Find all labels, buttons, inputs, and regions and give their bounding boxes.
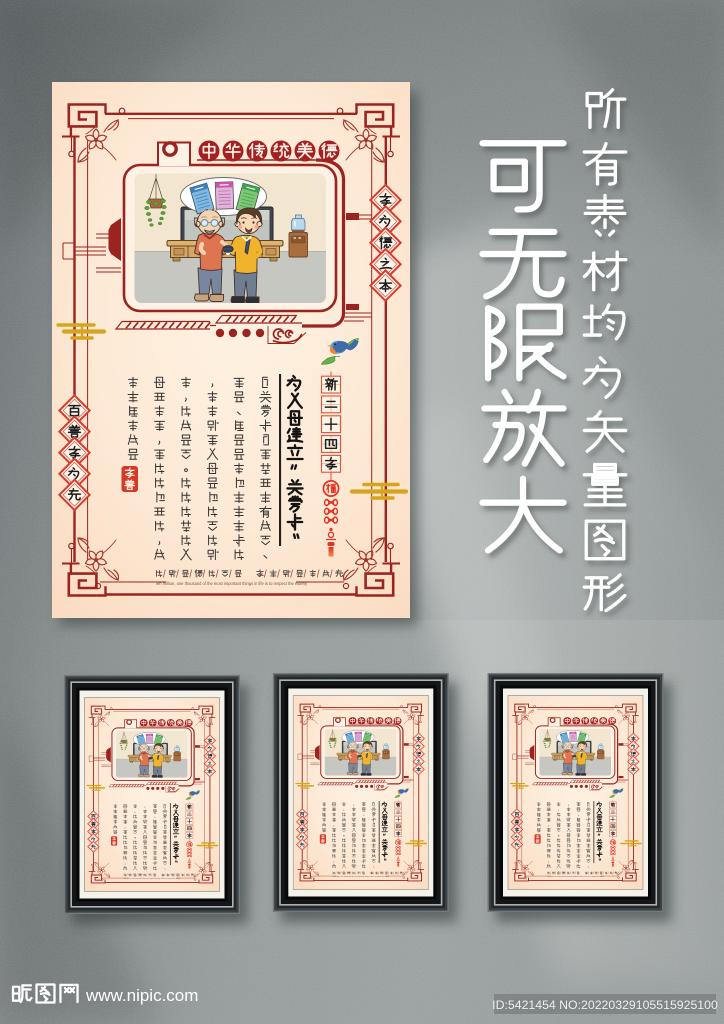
svg-text:www.nipic.com: www.nipic.com	[85, 986, 198, 1005]
svg-text:ID:5421454 NO:2022032910551592: ID:5421454 NO:20220329105515925100	[492, 998, 718, 1012]
